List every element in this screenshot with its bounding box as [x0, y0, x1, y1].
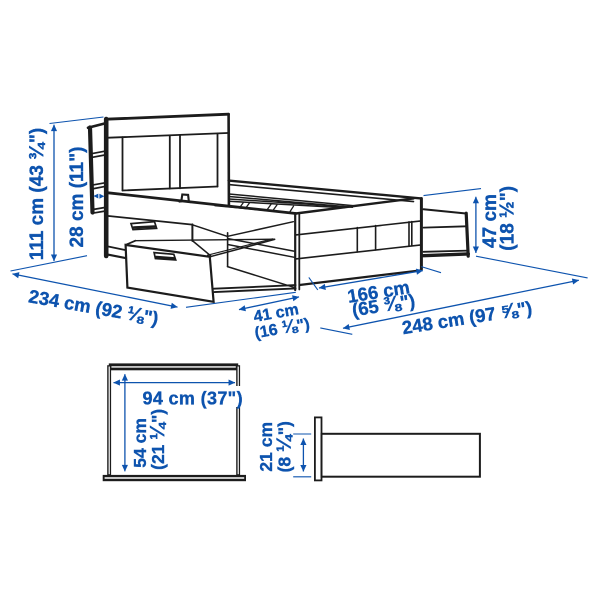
svg-text:(18 ½"): (18 ½")	[497, 186, 519, 251]
svg-text:111 cm (43 ¾"): 111 cm (43 ¾")	[26, 128, 48, 260]
svg-text:28 cm (11"): 28 cm (11")	[67, 147, 88, 248]
svg-text:234 cm (92 ⅛"): 234 cm (92 ⅛")	[27, 285, 160, 329]
svg-text:(21 ¼"): (21 ¼")	[147, 409, 169, 470]
svg-text:(8 ¼"): (8 ¼")	[273, 421, 295, 472]
svg-text:94 cm (37"): 94 cm (37")	[142, 389, 242, 409]
